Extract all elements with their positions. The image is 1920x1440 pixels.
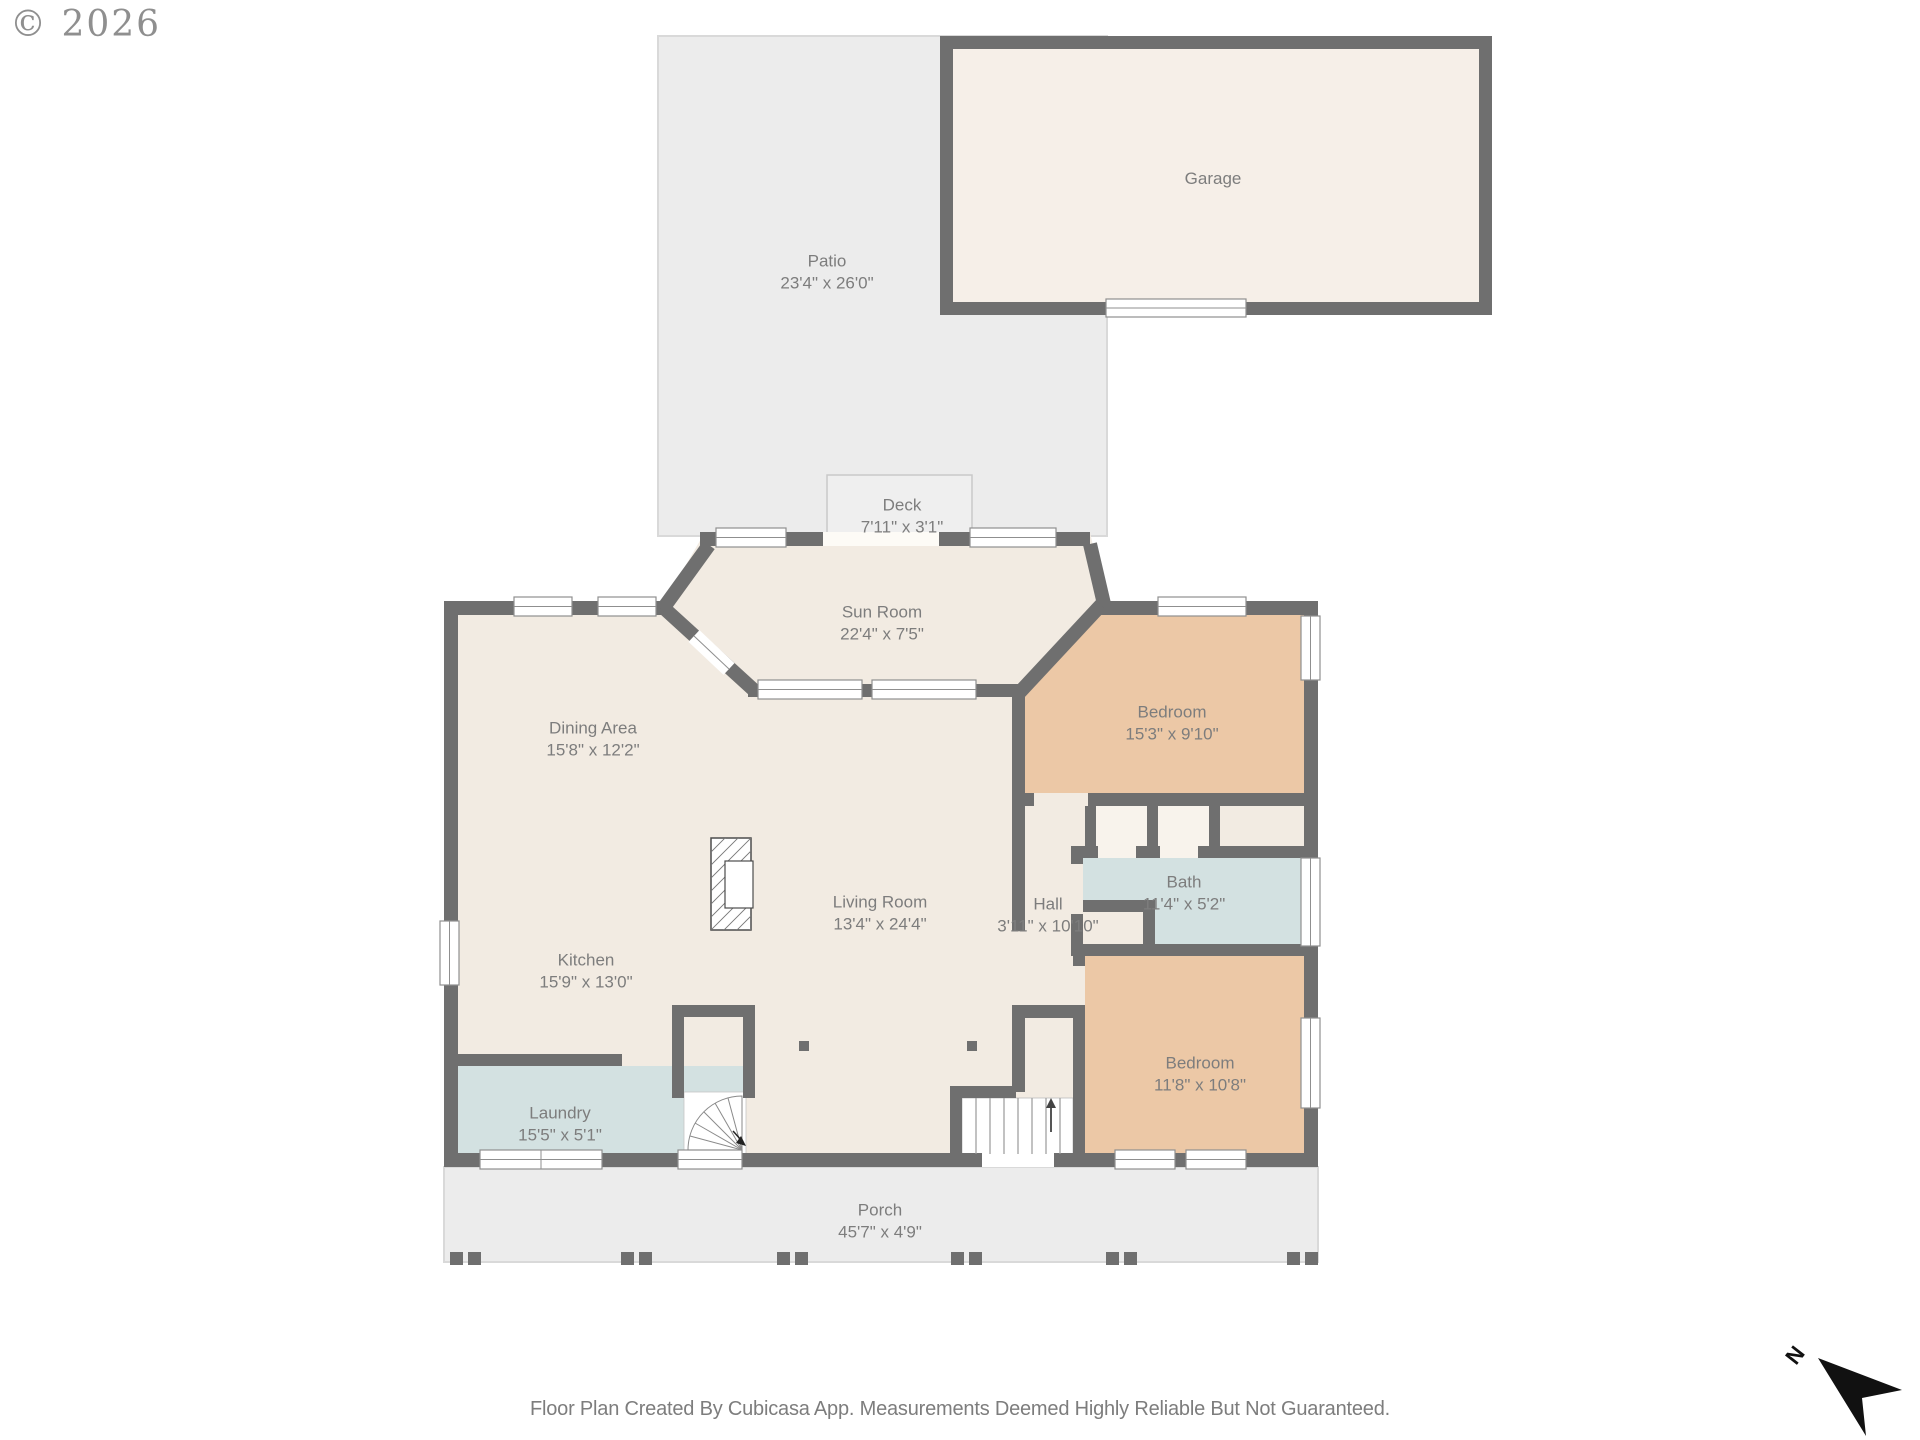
room-label-deck: Deck 7'11" x 3'1" xyxy=(861,495,944,540)
room-name: Sun Room xyxy=(840,602,924,624)
room-name: Bedroom xyxy=(1154,1053,1246,1075)
north-arrow-icon: N xyxy=(1780,1341,1902,1436)
room-name: Hall xyxy=(997,894,1098,916)
room-dims: 45'7" x 4'9" xyxy=(838,1222,922,1244)
room-label-sun-room: Sun Room 22'4" x 7'5" xyxy=(840,602,924,647)
room-name: Deck xyxy=(861,495,944,517)
north-label: N xyxy=(1780,1341,1809,1369)
room-label-patio: Patio 23'4" x 26'0" xyxy=(780,251,873,296)
room-name: Kitchen xyxy=(539,950,632,972)
room-label-bedroom2: Bedroom 11'8" x 10'8" xyxy=(1154,1053,1246,1098)
copyright-watermark: © 2026 xyxy=(10,4,161,45)
room-dims: 15'9" x 13'0" xyxy=(539,972,632,994)
room-dims: 7'11" x 3'1" xyxy=(861,517,944,539)
room-name: Bath xyxy=(1143,872,1226,894)
room-dims: 15'3" x 9'10" xyxy=(1125,724,1218,746)
column-marker xyxy=(967,1041,977,1051)
room-label-garage: Garage xyxy=(1185,168,1242,190)
room-name: Porch xyxy=(838,1200,922,1222)
room-dims: 3'11" x 10'10" xyxy=(997,916,1098,938)
disclaimer-text: Floor Plan Created By Cubicasa App. Meas… xyxy=(0,1398,1920,1421)
room-label-bedroom1: Bedroom 15'3" x 9'10" xyxy=(1125,702,1218,747)
room-label-porch: Porch 45'7" x 4'9" xyxy=(838,1200,922,1245)
closet1-floor xyxy=(1096,802,1147,852)
floor-plan-drawing: N xyxy=(0,0,1920,1440)
room-dims: 23'4" x 26'0" xyxy=(780,273,873,295)
room-name: Garage xyxy=(1185,168,1242,190)
room-dims: 13'4" x 24'4" xyxy=(833,914,928,936)
room-label-dining: Dining Area 15'8" x 12'2" xyxy=(546,718,639,763)
room-label-living: Living Room 13'4" x 24'4" xyxy=(833,892,928,937)
front-door xyxy=(982,1153,1054,1167)
room-name: Dining Area xyxy=(546,718,639,740)
room-name: Bedroom xyxy=(1125,702,1218,724)
room-name: Living Room xyxy=(833,892,928,914)
room-dims: 11'4" x 5'2" xyxy=(1143,894,1226,916)
room-label-kitchen: Kitchen 15'9" x 13'0" xyxy=(539,950,632,995)
room-label-hall: Hall 3'11" x 10'10" xyxy=(997,894,1098,939)
closet2-floor xyxy=(1158,802,1209,852)
room-name: Laundry xyxy=(518,1103,602,1125)
room-dims: 15'8" x 12'2" xyxy=(546,740,639,762)
room-label-bath: Bath 11'4" x 5'2" xyxy=(1143,872,1226,917)
room-dims: 15'5" x 5'1" xyxy=(518,1125,602,1147)
room-dims: 11'8" x 10'8" xyxy=(1154,1075,1246,1097)
room-dims: 22'4" x 7'5" xyxy=(840,624,924,646)
column-marker xyxy=(799,1041,809,1051)
floor-plan-page: N © 2026 Patio 23'4" x 26'0" Garage Deck… xyxy=(0,0,1920,1440)
room-name: Patio xyxy=(780,251,873,273)
room-label-laundry: Laundry 15'5" x 5'1" xyxy=(518,1103,602,1148)
